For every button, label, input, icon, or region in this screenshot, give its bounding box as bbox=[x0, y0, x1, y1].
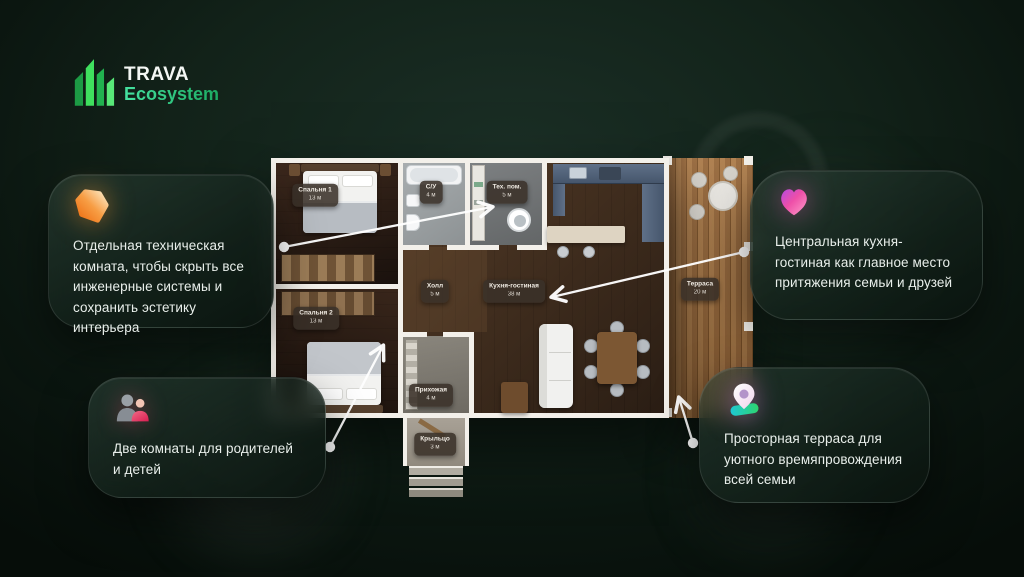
kitchen-counter bbox=[642, 184, 664, 242]
terrace-chair bbox=[689, 204, 705, 220]
room-label-bedroom2: Спальня 2 13 м bbox=[293, 307, 339, 330]
location-pin-icon bbox=[724, 380, 764, 420]
callout-card-terrace: Просторная терраса для уютного времяпров… bbox=[699, 367, 930, 503]
terrace-post bbox=[744, 322, 753, 331]
heart-icon bbox=[775, 183, 815, 223]
wall bbox=[469, 332, 474, 413]
room-label-terrace: Терраса 20 м bbox=[681, 278, 719, 301]
sofa bbox=[539, 324, 547, 408]
porch-step bbox=[409, 477, 463, 486]
callout-text: Просторная терраса для уютного времяпров… bbox=[724, 429, 905, 491]
room-label-bathroom: С/У 4 м bbox=[420, 181, 443, 204]
wall bbox=[517, 245, 547, 250]
sofa bbox=[549, 352, 571, 353]
brand-subtitle: Ecosystem bbox=[124, 85, 219, 104]
callout-text: Отдельная техническая комната, чтобы скр… bbox=[73, 236, 249, 339]
infographic-canvas: TRAVA Ecosystem bbox=[0, 0, 1024, 577]
porch-wall bbox=[403, 418, 407, 466]
wall bbox=[465, 163, 470, 245]
porch-step bbox=[409, 466, 463, 475]
brand-logo: TRAVA Ecosystem bbox=[73, 56, 219, 113]
bed-pillow bbox=[346, 388, 377, 400]
terrace-chair bbox=[691, 172, 707, 188]
shelving bbox=[474, 182, 483, 187]
wall bbox=[398, 163, 403, 413]
kitchen-stove bbox=[599, 167, 621, 180]
room-label-techroom: Тех. пом. 5 м bbox=[487, 181, 528, 204]
kitchen-island bbox=[547, 226, 625, 243]
terrace-chair bbox=[723, 166, 738, 181]
callout-card-bedrooms: Две комнаты для родителей и детей bbox=[88, 377, 326, 498]
terrace-post bbox=[744, 156, 753, 165]
wall bbox=[276, 284, 398, 289]
room-label-bedroom1: Спальня 1 13 м bbox=[292, 184, 338, 207]
room-label-entry: Прихожая 4 м bbox=[409, 384, 453, 407]
sofa bbox=[549, 380, 571, 381]
wall bbox=[447, 245, 499, 250]
crystal-icon bbox=[73, 187, 113, 227]
floor-plan: Спальня 1 13 м С/У 4 м Тех. пом. 5 м Спа… bbox=[271, 156, 758, 501]
sink bbox=[406, 194, 420, 207]
wall bbox=[403, 245, 429, 250]
room-label-porch: Крыльцо 3 м bbox=[414, 433, 456, 456]
dining-chair bbox=[610, 383, 624, 397]
dining-chair bbox=[584, 365, 598, 379]
callout-text: Две комнаты для родителей и детей bbox=[113, 439, 301, 480]
bed-blanket bbox=[307, 342, 381, 376]
shelving bbox=[474, 200, 483, 205]
porch-step bbox=[409, 488, 463, 497]
nightstand bbox=[380, 164, 391, 176]
callout-text: Центральная кухня-гостиная как главное м… bbox=[775, 232, 958, 294]
bar-stool bbox=[557, 246, 569, 258]
nightstand bbox=[289, 164, 300, 176]
kitchen-sink bbox=[569, 167, 587, 179]
washing-machine bbox=[514, 215, 526, 227]
logo-icon bbox=[73, 56, 115, 113]
dining-chair bbox=[584, 339, 598, 353]
dining-chair bbox=[636, 339, 650, 353]
porch-wall bbox=[465, 418, 469, 466]
callout-card-kitchen-living: Центральная кухня-гостиная как главное м… bbox=[750, 170, 983, 320]
room-label-kitchen-living: Кухня-гостиная 38 м bbox=[483, 280, 545, 303]
coffee-table bbox=[501, 382, 528, 413]
room-label-hall: Холл 5 м bbox=[421, 280, 449, 303]
wall bbox=[403, 332, 427, 337]
wardrobe bbox=[281, 254, 375, 282]
kitchen-counter bbox=[553, 184, 565, 216]
brand-name: TRAVA bbox=[124, 65, 219, 85]
bed-pillow bbox=[342, 175, 373, 187]
bar-stool bbox=[583, 246, 595, 258]
callout-card-tech-room: Отдельная техническая комната, чтобы скр… bbox=[48, 174, 274, 328]
people-icon bbox=[113, 390, 153, 430]
terrace-table bbox=[708, 181, 738, 211]
toilet bbox=[406, 214, 420, 231]
dining-table bbox=[597, 332, 637, 384]
dining-chair bbox=[636, 365, 650, 379]
